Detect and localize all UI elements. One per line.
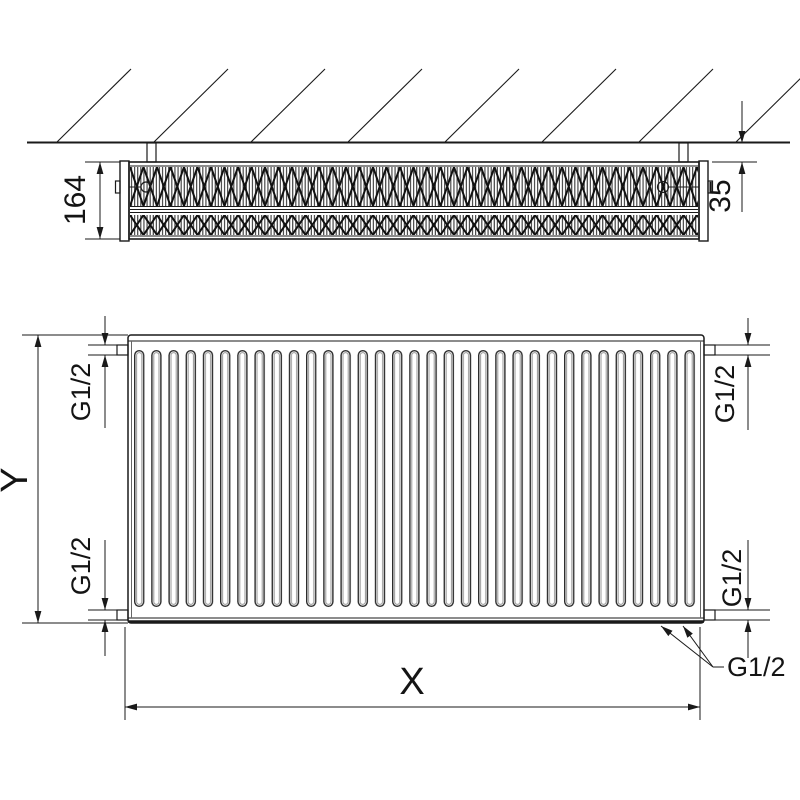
stub-bottom-right — [704, 610, 715, 620]
dimension-conn-bottom-right: G1/2 — [715, 540, 770, 658]
conn-bottom-right-label: G1/2 — [717, 549, 747, 608]
dimension-depth-164: 164 — [59, 162, 120, 239]
conn-bottom-callout-label: G1/2 — [727, 652, 786, 682]
stub-top-right — [704, 345, 715, 355]
dimension-conn-top-left: G1/2 — [66, 316, 117, 428]
conn-top-left-label: G1/2 — [66, 363, 96, 422]
radiator-technical-drawing: 164 35 — [0, 0, 800, 800]
conn-top-right-label: G1/2 — [710, 365, 740, 424]
conn-bottom-left-label: G1/2 — [66, 537, 96, 596]
top-view: 164 35 — [27, 69, 800, 241]
wall-hatching — [27, 69, 800, 143]
dimension-conn-top-right: G1/2 — [710, 318, 770, 430]
stub-top-left — [117, 345, 128, 355]
dimension-conn-bottom-left: G1/2 — [66, 537, 117, 656]
front-view: Y X G1/2 G1/2 — [0, 316, 786, 720]
wall-clearance-dimension-label: 35 — [704, 179, 737, 212]
radiator-front-body — [128, 335, 704, 623]
conn-bottom-callout: G1/2 — [661, 626, 786, 682]
drawing-canvas: 164 35 — [0, 0, 800, 800]
convector-fins — [130, 166, 698, 236]
depth-dimension-label: 164 — [59, 175, 92, 225]
end-cap-left — [120, 161, 129, 241]
radiator-top-view-body — [116, 161, 713, 241]
dimension-wall-clearance-35: 35 — [704, 101, 757, 213]
stub-bottom-left — [117, 610, 128, 620]
dimension-height-Y: Y — [0, 335, 128, 623]
panel-slots — [134, 350, 696, 607]
length-dimension-label: X — [399, 661, 424, 703]
dimension-length-X: X — [125, 627, 700, 720]
wall-bracket-left — [147, 143, 156, 162]
wall-bracket-right — [679, 143, 688, 162]
height-dimension-label: Y — [0, 467, 36, 492]
